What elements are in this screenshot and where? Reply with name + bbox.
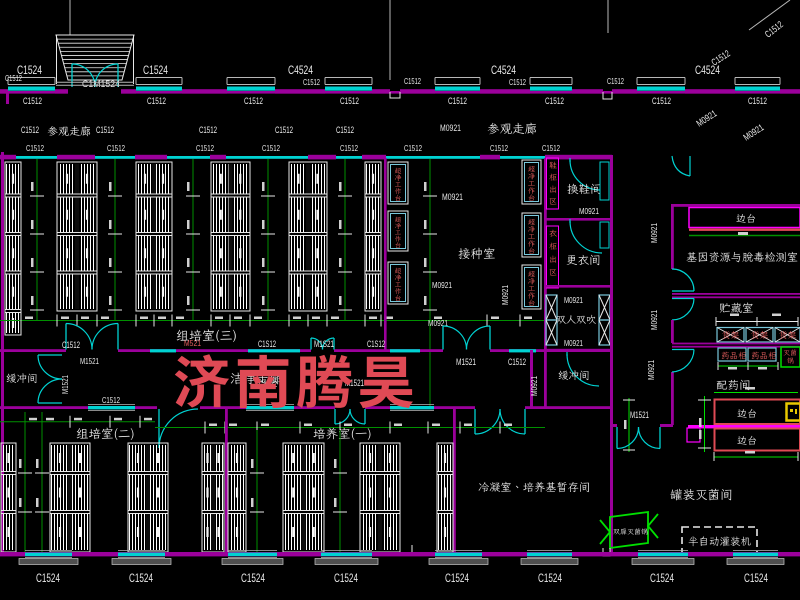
- svg-text:M0921: M0921: [432, 280, 452, 290]
- svg-text:C1512: C1512: [509, 77, 526, 87]
- svg-text:M1521: M1521: [456, 357, 476, 367]
- svg-text:M0921: M0921: [529, 376, 539, 396]
- svg-text:C1M1524: C1M1524: [82, 79, 120, 89]
- svg-text:C1512: C1512: [542, 143, 560, 153]
- svg-text:C1512: C1512: [199, 125, 217, 135]
- svg-text:C4524: C4524: [288, 63, 313, 77]
- svg-text:C1524: C1524: [129, 571, 153, 585]
- svg-text:C1512: C1512: [102, 395, 120, 405]
- svg-text:C1524: C1524: [334, 571, 358, 585]
- svg-text:C1512: C1512: [107, 143, 125, 153]
- svg-text:M0921: M0921: [649, 223, 659, 243]
- svg-text:C4524: C4524: [695, 63, 720, 77]
- svg-text:C1512: C1512: [652, 96, 671, 107]
- svg-text:C1512: C1512: [763, 19, 786, 40]
- svg-text:C1S12: C1S12: [367, 339, 385, 349]
- svg-text:C1512: C1512: [748, 96, 767, 107]
- svg-text:M0921: M0921: [442, 192, 463, 202]
- svg-text:C1512: C1512: [340, 96, 359, 107]
- svg-text:C1512: C1512: [26, 143, 44, 153]
- svg-text:C4524: C4524: [491, 63, 516, 77]
- svg-text:C1524: C1524: [650, 571, 674, 585]
- svg-text:C1512: C1512: [5, 73, 22, 83]
- svg-text:C1S12: C1S12: [258, 339, 276, 349]
- svg-text:C1512: C1512: [275, 125, 293, 135]
- svg-text:C1524: C1524: [744, 571, 768, 585]
- svg-text:C1512: C1512: [196, 143, 214, 153]
- svg-text:C1512: C1512: [96, 125, 114, 135]
- svg-text:C1524: C1524: [36, 571, 60, 585]
- svg-text:M1521: M1521: [60, 375, 70, 394]
- svg-text:M1521: M1521: [630, 410, 649, 420]
- svg-text:M0921: M0921: [695, 108, 719, 129]
- svg-text:C1512: C1512: [340, 143, 358, 153]
- svg-text:C1512: C1512: [336, 125, 354, 135]
- svg-text:C1524: C1524: [143, 63, 168, 77]
- svg-text:C1512: C1512: [23, 96, 42, 107]
- svg-text:C1512: C1512: [147, 96, 166, 107]
- svg-text:M0921: M0921: [742, 122, 766, 143]
- svg-text:M0921: M0921: [440, 123, 461, 133]
- svg-text:C1512: C1512: [21, 125, 39, 135]
- svg-text:C1512: C1512: [490, 143, 508, 153]
- svg-text:C1524: C1524: [241, 571, 265, 585]
- svg-text:M0921: M0921: [564, 339, 583, 348]
- svg-text:M1S21: M1S21: [314, 339, 334, 349]
- svg-text:M0921: M0921: [564, 296, 583, 305]
- svg-text:C1524: C1524: [538, 571, 562, 585]
- svg-text:M0921: M0921: [500, 285, 510, 305]
- svg-text:C1512: C1512: [404, 76, 421, 86]
- svg-text:M0921: M0921: [579, 206, 599, 216]
- svg-text:M0921: M0921: [646, 360, 656, 380]
- svg-text:C1512: C1512: [404, 143, 422, 153]
- svg-text:C1512: C1512: [303, 77, 320, 87]
- svg-text:C1512: C1512: [545, 96, 564, 107]
- svg-text:C1512: C1512: [62, 340, 80, 350]
- svg-text:C1512: C1512: [508, 357, 526, 367]
- svg-text:C1512: C1512: [244, 96, 263, 107]
- svg-text:M0921: M0921: [649, 310, 659, 330]
- svg-text:C1512: C1512: [448, 96, 467, 107]
- svg-text:C1524: C1524: [445, 571, 469, 585]
- svg-text:C1512: C1512: [262, 143, 280, 153]
- svg-text:C1512: C1512: [607, 76, 624, 86]
- svg-text:M1521: M1521: [80, 356, 99, 366]
